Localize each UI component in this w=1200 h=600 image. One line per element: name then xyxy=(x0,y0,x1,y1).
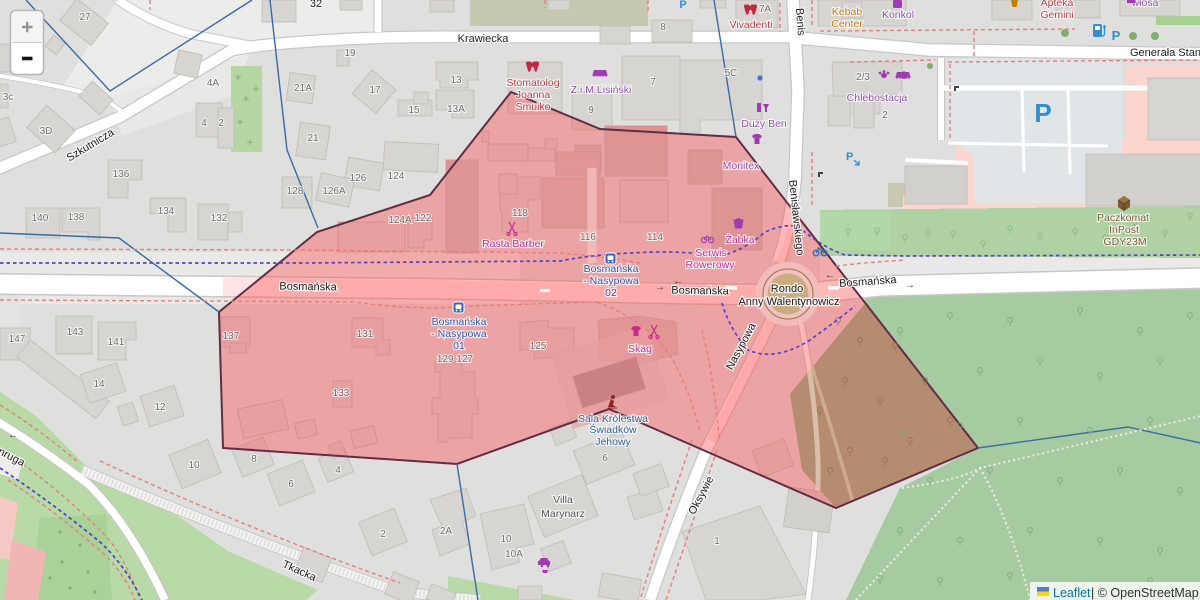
svg-text:Paczkomat: Paczkomat xyxy=(1097,212,1149,224)
svg-text:10: 10 xyxy=(500,534,512,545)
svg-text:4: 4 xyxy=(201,118,207,129)
svg-text:131: 131 xyxy=(357,329,374,340)
svg-text:- Nasypowa: - Nasypowa xyxy=(583,275,639,287)
svg-text:Rasta Barber: Rasta Barber xyxy=(482,238,544,250)
svg-text:GDY23M: GDY23M xyxy=(1103,236,1146,248)
svg-text:21: 21 xyxy=(307,133,319,144)
svg-text:128: 128 xyxy=(287,186,304,197)
svg-text:133: 133 xyxy=(333,388,350,399)
svg-text:3D: 3D xyxy=(40,126,53,137)
svg-text:Serwis: Serwis xyxy=(695,247,727,259)
svg-text:Smuiko: Smuiko xyxy=(515,101,550,113)
svg-text:3c: 3c xyxy=(3,92,14,103)
svg-text:Generała Stan: Generała Stan xyxy=(1130,47,1200,59)
svg-text:8: 8 xyxy=(660,22,666,33)
svg-text:Duzy Ben: Duzy Ben xyxy=(741,118,787,130)
svg-text:InPost: InPost xyxy=(1109,224,1139,236)
svg-text:126: 126 xyxy=(350,173,367,184)
svg-text:13A: 13A xyxy=(447,104,465,115)
svg-text:Rondo: Rondo xyxy=(771,283,803,295)
svg-text:132: 132 xyxy=(211,213,228,224)
svg-text:Bosmańska: Bosmańska xyxy=(432,316,487,328)
svg-text:←: ← xyxy=(673,276,683,287)
svg-text:7A: 7A xyxy=(759,4,772,15)
svg-text:Krawiecka: Krawiecka xyxy=(458,33,510,45)
svg-text:Monitex: Monitex xyxy=(723,160,761,172)
svg-text:01: 01 xyxy=(453,340,465,352)
svg-text:7: 7 xyxy=(650,77,656,88)
svg-text:Joanna: Joanna xyxy=(516,89,551,101)
svg-text:1: 1 xyxy=(714,536,720,547)
svg-text:125: 125 xyxy=(530,341,547,352)
svg-text:Anny Walentynowicz: Anny Walentynowicz xyxy=(738,296,839,308)
svg-text:Marynarz: Marynarz xyxy=(541,508,585,520)
svg-text:19: 19 xyxy=(344,48,356,59)
svg-text:P: P xyxy=(1034,98,1051,128)
svg-text:15: 15 xyxy=(408,105,420,116)
svg-text:2A: 2A xyxy=(440,526,453,537)
svg-text:5C: 5C xyxy=(725,68,738,79)
svg-text:118: 118 xyxy=(512,208,528,219)
svg-text:Chlebostacja: Chlebostacja xyxy=(847,92,908,104)
svg-text:Konkol: Konkol xyxy=(882,9,914,21)
svg-text:21A: 21A xyxy=(294,83,312,94)
svg-text:→: → xyxy=(655,282,665,293)
svg-text:126A: 126A xyxy=(322,186,346,197)
svg-text:P: P xyxy=(679,0,686,11)
svg-text:- Nasypowa: - Nasypowa xyxy=(431,328,487,340)
svg-text:P: P xyxy=(1112,28,1121,43)
svg-text:141: 141 xyxy=(108,337,125,348)
svg-text:124A: 124A xyxy=(388,215,412,226)
svg-text:P: P xyxy=(846,151,853,163)
svg-text:Gemini: Gemini xyxy=(1040,9,1073,21)
svg-text:134: 134 xyxy=(158,206,175,217)
svg-text:Bosmańska: Bosmańska xyxy=(584,263,639,275)
svg-text:2: 2 xyxy=(380,529,386,540)
svg-text:Leaflet: Leaflet xyxy=(1053,586,1091,600)
svg-text:9: 9 xyxy=(588,105,594,116)
svg-text:Z i M Lisiński: Z i M Lisiński xyxy=(571,84,632,96)
svg-text:2: 2 xyxy=(218,118,224,129)
svg-text:4: 4 xyxy=(335,465,341,476)
svg-text:116: 116 xyxy=(580,232,596,243)
svg-text:| © OpenStreetMap: | © OpenStreetMap xyxy=(1091,586,1199,600)
svg-text:Vivadenti: Vivadenti xyxy=(729,19,772,31)
svg-text:147: 147 xyxy=(9,334,26,345)
svg-text:138: 138 xyxy=(68,212,85,223)
svg-text:17: 17 xyxy=(369,85,381,96)
svg-text:←: ← xyxy=(8,430,18,441)
svg-text:6: 6 xyxy=(288,479,294,490)
svg-text:4A: 4A xyxy=(207,78,220,89)
svg-text:10A: 10A xyxy=(505,549,523,560)
svg-text:Kebab: Kebab xyxy=(832,6,863,18)
svg-text:8: 8 xyxy=(251,454,257,465)
svg-text:Center: Center xyxy=(831,18,863,30)
svg-text:140: 140 xyxy=(32,213,49,224)
svg-text:27: 27 xyxy=(79,12,91,23)
svg-text:124: 124 xyxy=(388,171,405,182)
svg-text:137: 137 xyxy=(223,331,240,342)
svg-text:Jehowy: Jehowy xyxy=(595,436,631,448)
svg-text:02: 02 xyxy=(605,287,617,299)
svg-text:129 127: 129 127 xyxy=(437,354,474,365)
svg-text:12: 12 xyxy=(154,402,166,413)
svg-text:122: 122 xyxy=(415,213,432,224)
svg-text:←: ← xyxy=(825,270,835,281)
svg-text:13: 13 xyxy=(450,75,462,86)
svg-text:→: → xyxy=(905,280,915,291)
svg-text:Benis: Benis xyxy=(793,8,807,37)
svg-text:Apteka: Apteka xyxy=(1041,0,1074,9)
svg-text:10: 10 xyxy=(188,460,200,471)
svg-text:6: 6 xyxy=(602,453,608,464)
svg-text:14: 14 xyxy=(93,379,105,390)
svg-text:Świadków: Świadków xyxy=(589,423,637,436)
svg-text:136: 136 xyxy=(113,169,130,180)
svg-text:2/3: 2/3 xyxy=(856,72,870,83)
svg-text:Rowerowy: Rowerowy xyxy=(685,259,735,271)
svg-text:2: 2 xyxy=(882,110,888,121)
svg-text:Żabka: Żabka xyxy=(725,233,754,246)
svg-text:Skag: Skag xyxy=(628,343,652,355)
svg-text:Stomatolog: Stomatolog xyxy=(506,77,559,89)
svg-text:143: 143 xyxy=(67,327,84,338)
svg-text:32: 32 xyxy=(310,0,322,10)
svg-text:Bosmańska: Bosmańska xyxy=(279,280,338,293)
svg-text:114: 114 xyxy=(647,232,663,243)
svg-text:Villa: Villa xyxy=(553,494,573,506)
